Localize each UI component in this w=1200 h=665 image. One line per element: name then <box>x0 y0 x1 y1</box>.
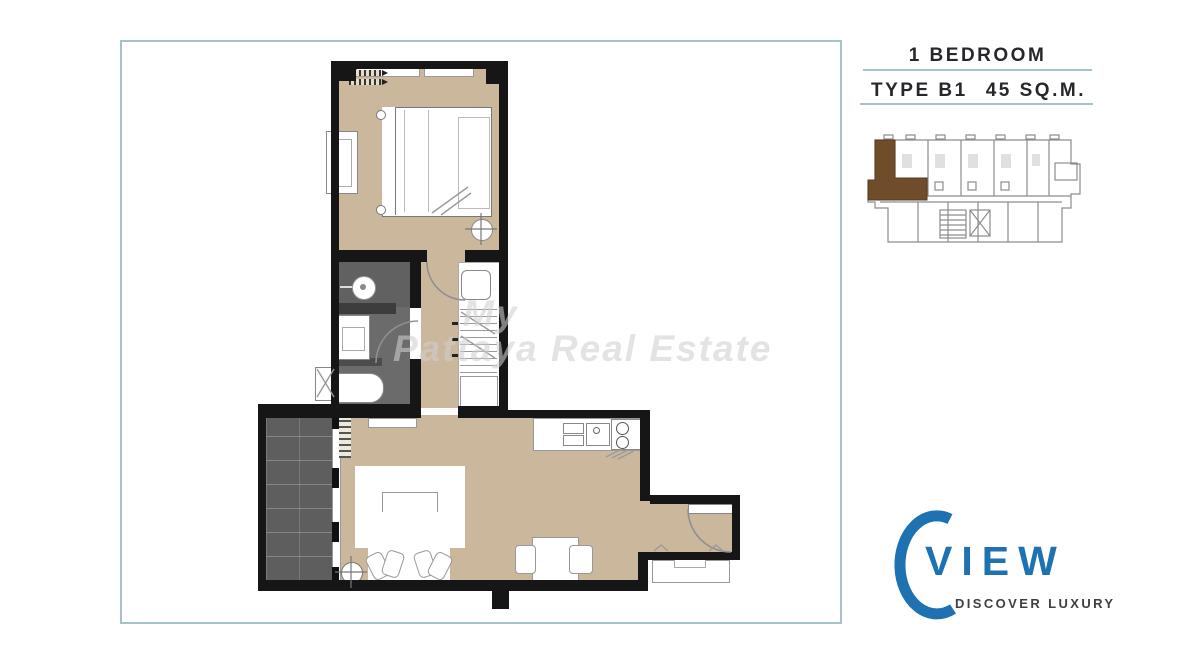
wall-kitchen-right <box>640 410 650 501</box>
wall-entry-top <box>650 495 740 504</box>
keyplan-unit-details <box>902 154 1040 168</box>
faucet-icon <box>593 427 600 434</box>
burner-icon <box>616 422 629 435</box>
bed-duvet <box>458 117 490 209</box>
wall-bedroom-top <box>331 61 508 69</box>
keyplan-window-ticks <box>884 135 1059 139</box>
wall-kitchen-top <box>508 410 650 418</box>
watermark-line2: Pattaya Real Estate <box>393 328 772 370</box>
wall-niche <box>368 418 417 428</box>
floorplan-page: My Pattaya Real Estate 1 BEDROOM TYPE B1… <box>0 0 1200 665</box>
unit-bedrooms-title: 1 BEDROOM <box>860 45 1095 67</box>
shower-partition-wall <box>338 303 396 314</box>
wall-left <box>331 61 339 412</box>
shower-head-center <box>360 284 366 290</box>
wall-column-bottom <box>458 406 508 418</box>
kitchen-sink-basin <box>563 423 584 434</box>
ac-flow-arrow-icon <box>382 79 388 85</box>
sliding-door-rail <box>332 567 339 581</box>
bed-post <box>376 205 386 215</box>
bathtub <box>332 373 384 403</box>
wall-exterior-band <box>258 404 421 418</box>
keyplan-right-block <box>1055 163 1077 180</box>
wall-bedroom-bath <box>465 250 508 262</box>
keyplan-highlighted-unit <box>868 140 927 200</box>
console-notch <box>674 560 706 568</box>
building-key-plan <box>866 124 1092 250</box>
wall-entry-bottom <box>647 552 740 560</box>
sofa <box>382 492 438 512</box>
door-hinge-mark <box>452 322 458 325</box>
bed-pillow-line <box>428 110 429 212</box>
cabinet <box>460 376 498 409</box>
bed-post <box>376 110 386 120</box>
ac-flow-arrow-icon <box>382 70 388 76</box>
sliding-door-rail <box>332 468 339 488</box>
wall-bath-corridor <box>410 262 421 308</box>
entry-door-leaf <box>688 504 734 514</box>
dining-chair <box>515 545 536 574</box>
area-label: 45 SQ.M. <box>986 80 1086 101</box>
title-underline <box>863 69 1092 71</box>
ac-unit-icon <box>339 418 351 458</box>
wall-stub <box>492 591 509 609</box>
wall-balcony-left <box>258 412 266 591</box>
type-label: TYPE B1 <box>871 80 968 101</box>
bed-pillow-line <box>404 110 405 212</box>
ceiling-light-icon <box>471 219 493 241</box>
brand-tagline: DISCOVER LUXURY <box>955 596 1115 611</box>
kitchen-sink-basin <box>563 435 584 446</box>
unit-type-title: TYPE B145 SQ.M. <box>860 80 1097 102</box>
balcony-floor <box>266 415 332 581</box>
burner-icon <box>616 436 629 449</box>
bed-headboard <box>382 107 396 215</box>
dining-chair <box>569 545 593 574</box>
washbasin <box>342 327 365 351</box>
brand-wordmark: VIEW <box>925 538 1066 585</box>
wall-living-bottom <box>258 580 647 591</box>
title-underline <box>860 103 1093 105</box>
wall-bedroom-bath <box>331 250 427 262</box>
wall-entry-right <box>732 495 740 558</box>
sliding-door-rail <box>332 522 339 542</box>
